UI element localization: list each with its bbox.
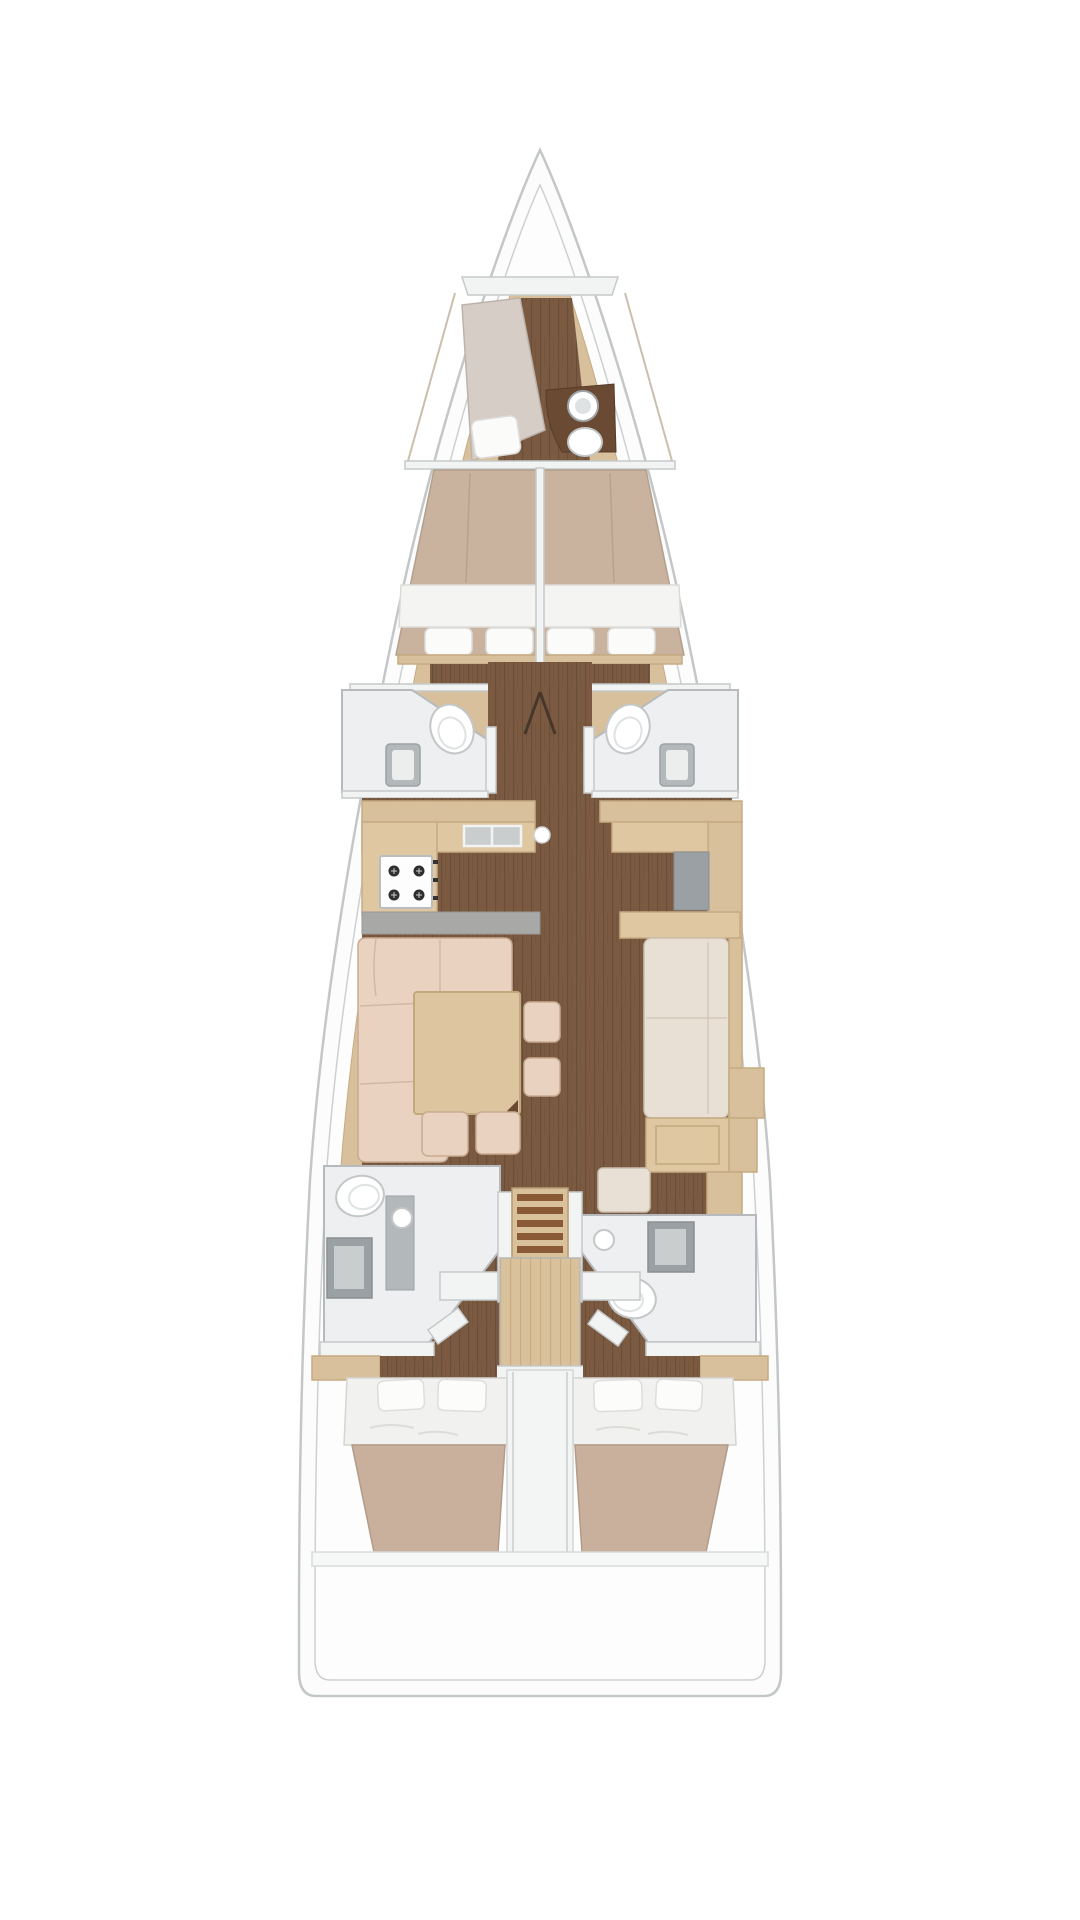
berth-mattress [352, 1445, 505, 1552]
corridor-floor [488, 662, 592, 798]
stool [524, 1002, 560, 1042]
settee-cushion [644, 938, 729, 1118]
berth-pillow [377, 1379, 425, 1411]
shower-tray [655, 1229, 686, 1265]
aft-cabin-port [344, 1378, 507, 1552]
berth-sheet [399, 585, 537, 627]
stool [422, 1112, 468, 1156]
berth-pillow [593, 1379, 642, 1412]
aft-cabin-stbd [573, 1378, 736, 1552]
berth-pillow [425, 628, 472, 655]
hull-step [729, 1118, 757, 1172]
washbasin-bowl [392, 750, 414, 780]
berth-pillow [655, 1379, 703, 1411]
washbasin-icon [594, 1230, 614, 1250]
chart-panel [674, 852, 709, 910]
berth-pillow [608, 628, 655, 655]
toilet-icon [568, 428, 602, 456]
companionway-ramp [500, 1258, 580, 1370]
stern-step-band [312, 1552, 768, 1566]
berth-pillow [437, 1379, 486, 1412]
yacht-floor-plan [0, 0, 1080, 1920]
stool [524, 1058, 560, 1096]
foot-locker-port [312, 1356, 380, 1380]
berth-mattress [575, 1445, 728, 1552]
door-jamb [584, 727, 594, 793]
cabin-divider [536, 468, 544, 688]
berth-sheet [543, 585, 681, 627]
galley-worktop [362, 912, 540, 934]
nav-top-cabinet [600, 801, 742, 822]
bow-deck [462, 277, 618, 295]
cabin-floor-stbd [583, 1356, 700, 1380]
seat-cushion [598, 1168, 650, 1212]
berth-pillow [486, 628, 533, 655]
stool [476, 1112, 520, 1154]
washbasin-drain [575, 398, 591, 414]
head-aft-wall-stbd [592, 791, 738, 798]
foot-locker-stbd [700, 1356, 768, 1380]
galley-top-cabinet [362, 801, 535, 822]
stove-icon [380, 856, 432, 908]
washbasin-bowl [666, 750, 688, 780]
entry-shelf [440, 1272, 498, 1300]
cabin-floor-port [380, 1356, 497, 1380]
cabin-divider [507, 1370, 573, 1560]
skipper-pillow [471, 415, 522, 459]
shower-tray [334, 1246, 364, 1289]
washbasin-icon [392, 1208, 412, 1228]
head-aft-wall-port [342, 791, 488, 798]
bow-bulkhead [462, 277, 618, 295]
entry-shelf [582, 1272, 640, 1300]
hull-step [729, 1068, 764, 1118]
aft-cabins [312, 1356, 768, 1566]
door-knob-icon [534, 827, 550, 843]
berth-pillow [547, 628, 594, 655]
nav-cabinet [620, 912, 740, 938]
dining-table [414, 992, 520, 1114]
door-jamb [486, 727, 496, 793]
